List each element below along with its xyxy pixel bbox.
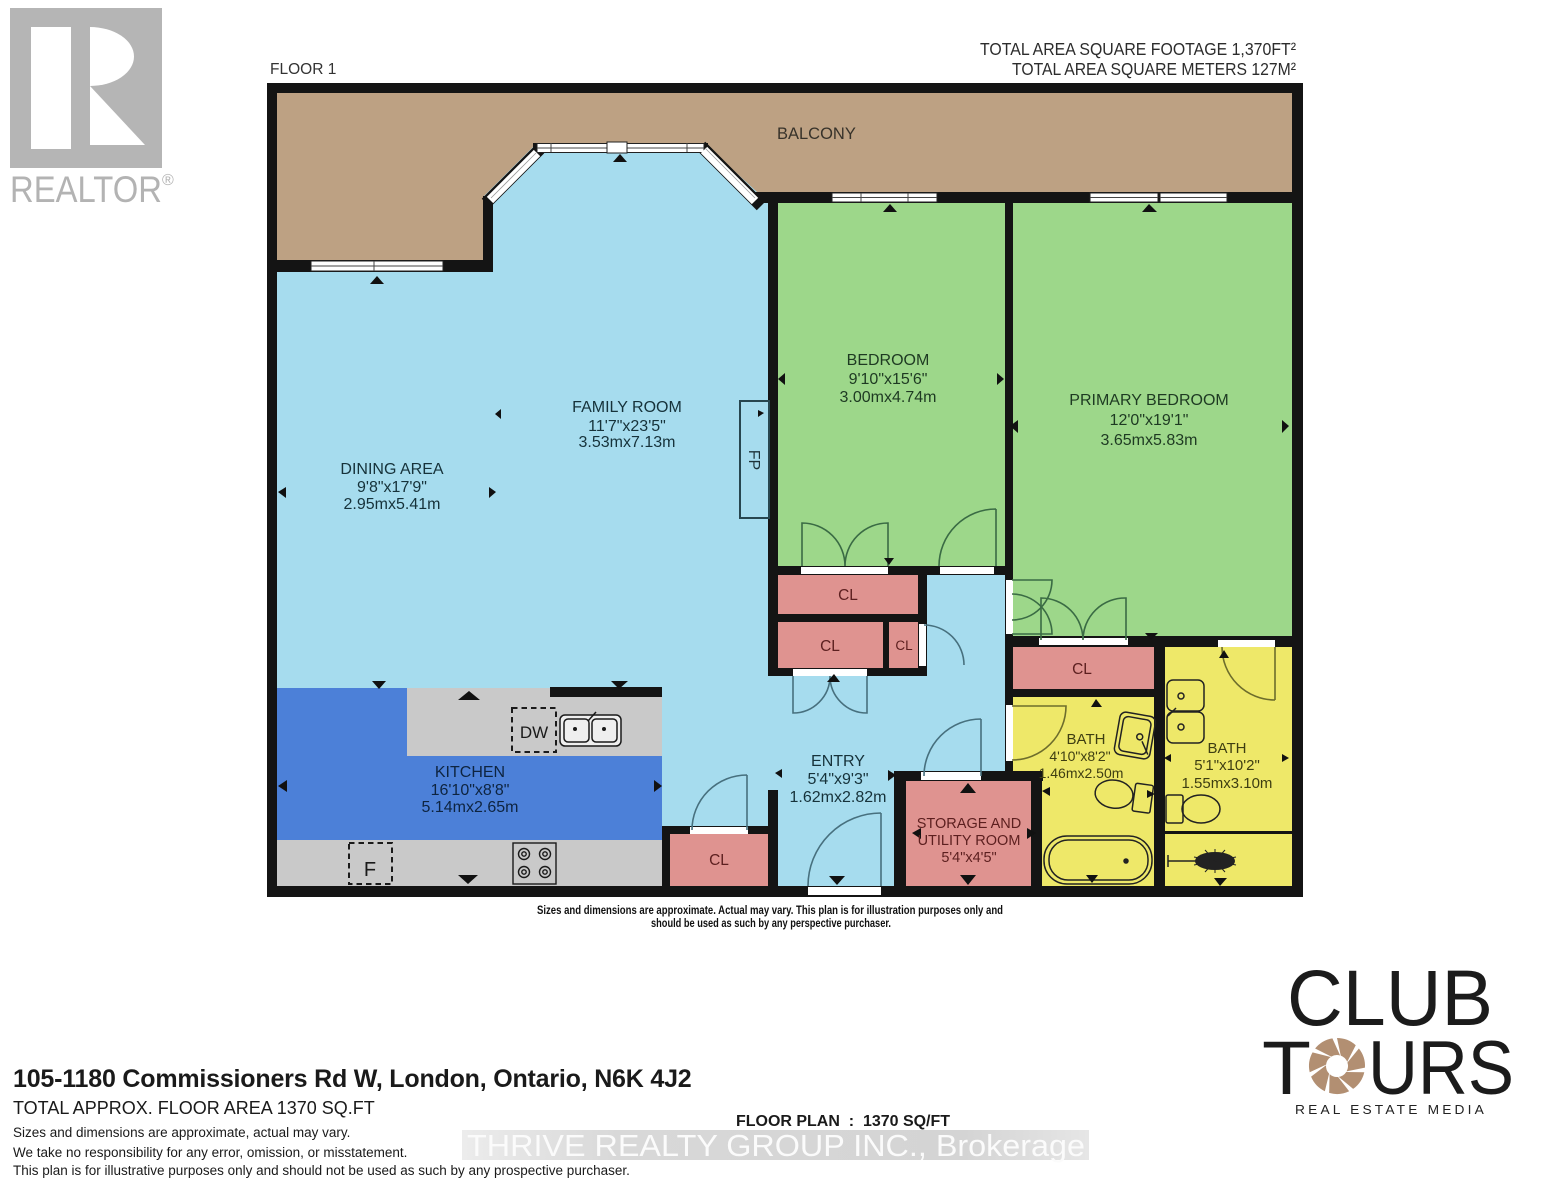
- svg-text:CL: CL: [820, 638, 840, 655]
- svg-text:5'4"x9'3": 5'4"x9'3": [807, 771, 868, 788]
- svg-text:CL: CL: [838, 587, 858, 604]
- svg-text:CL: CL: [895, 638, 913, 653]
- svg-text:BALCONY: BALCONY: [777, 125, 856, 143]
- svg-text:DW: DW: [520, 723, 548, 742]
- svg-text:12'0"x19'1": 12'0"x19'1": [1110, 412, 1189, 429]
- svg-text:This plan is for illustrative: This plan is for illustrative purposes o…: [13, 1163, 630, 1178]
- svg-text:105-1180 Commissioners Rd W, L: 105-1180 Commissioners Rd W, London, Ont…: [13, 1065, 691, 1093]
- svg-text:4'10"x8'2": 4'10"x8'2": [1049, 748, 1110, 764]
- svg-text:ENTRY: ENTRY: [811, 753, 865, 770]
- svg-text:FLOOR PLAN : 1370 SQ/FT: FLOOR PLAN : 1370 SQ/FT: [736, 1113, 950, 1130]
- svg-text:5.14mx2.65m: 5.14mx2.65m: [422, 799, 519, 816]
- svg-text:TOTAL AREA SQUARE METERS 127M²: TOTAL AREA SQUARE METERS 127M²: [1012, 59, 1296, 79]
- svg-text:FAMILY ROOM: FAMILY ROOM: [572, 399, 682, 416]
- svg-text:1.55mx3.10m: 1.55mx3.10m: [1182, 775, 1273, 792]
- svg-text:TOTAL APPROX. FLOOR AREA 1370: TOTAL APPROX. FLOOR AREA 1370 SQ.FT: [13, 1098, 375, 1118]
- svg-text:9'8"x17'9": 9'8"x17'9": [357, 479, 427, 496]
- svg-text:2.95mx5.41m: 2.95mx5.41m: [344, 496, 441, 513]
- svg-text:1.62mx2.82m: 1.62mx2.82m: [790, 789, 887, 806]
- svg-text:FLOOR 1: FLOOR 1: [270, 61, 336, 78]
- svg-text:should be used as such by any: should be used as such by any perspectiv…: [651, 918, 891, 930]
- svg-text:11'7"x23'5": 11'7"x23'5": [588, 418, 666, 435]
- svg-text:REAL ESTATE MEDIA: REAL ESTATE MEDIA: [1295, 1102, 1487, 1117]
- svg-text:3.65mx5.83m: 3.65mx5.83m: [1101, 432, 1198, 449]
- svg-text:CL: CL: [709, 852, 729, 869]
- svg-text:REALTOR: REALTOR: [10, 168, 162, 210]
- svg-text:PRIMARY BEDROOM: PRIMARY BEDROOM: [1069, 392, 1228, 409]
- svg-text:UTILITY ROOM: UTILITY ROOM: [918, 833, 1021, 849]
- svg-text:1.46mx2.50m: 1.46mx2.50m: [1039, 765, 1124, 781]
- svg-text:Sizes and dimensions are appro: Sizes and dimensions are approximate. Ac…: [537, 905, 1003, 917]
- svg-text:16'10"x8'8": 16'10"x8'8": [431, 782, 510, 799]
- svg-text:T: T: [1262, 1026, 1311, 1111]
- svg-text:FP: FP: [745, 450, 762, 470]
- svg-text:3.00mx4.74m: 3.00mx4.74m: [840, 389, 937, 406]
- svg-text:TOTAL AREA SQUARE FOOTAGE 1,37: TOTAL AREA SQUARE FOOTAGE 1,370FT²: [980, 39, 1296, 59]
- svg-text:THRIVE REALTY GROUP INC., Brok: THRIVE REALTY GROUP INC., Brokerage: [467, 1128, 1085, 1163]
- svg-text:5'4"x4'5": 5'4"x4'5": [941, 850, 996, 866]
- svg-text:3.53mx7.13m: 3.53mx7.13m: [579, 434, 676, 451]
- svg-text:CL: CL: [1072, 661, 1092, 678]
- svg-text:®: ®: [162, 172, 174, 189]
- svg-text:BEDROOM: BEDROOM: [847, 352, 930, 369]
- svg-text:STORAGE AND: STORAGE AND: [917, 816, 1021, 832]
- svg-text:DINING AREA: DINING AREA: [340, 461, 443, 478]
- svg-text:BATH: BATH: [1067, 731, 1106, 748]
- svg-text:URS: URS: [1368, 1026, 1514, 1111]
- svg-text:BATH: BATH: [1208, 740, 1247, 757]
- svg-text:We take no responsibility for: We take no responsibility for any error,…: [13, 1145, 407, 1160]
- svg-text:9'10"x15'6": 9'10"x15'6": [849, 371, 928, 388]
- svg-text:5'1"x10'2": 5'1"x10'2": [1194, 757, 1260, 774]
- svg-text:KITCHEN: KITCHEN: [435, 764, 505, 781]
- svg-text:F: F: [364, 859, 376, 881]
- svg-text:Sizes and dimensions are appro: Sizes and dimensions are approximate, ac…: [13, 1125, 350, 1140]
